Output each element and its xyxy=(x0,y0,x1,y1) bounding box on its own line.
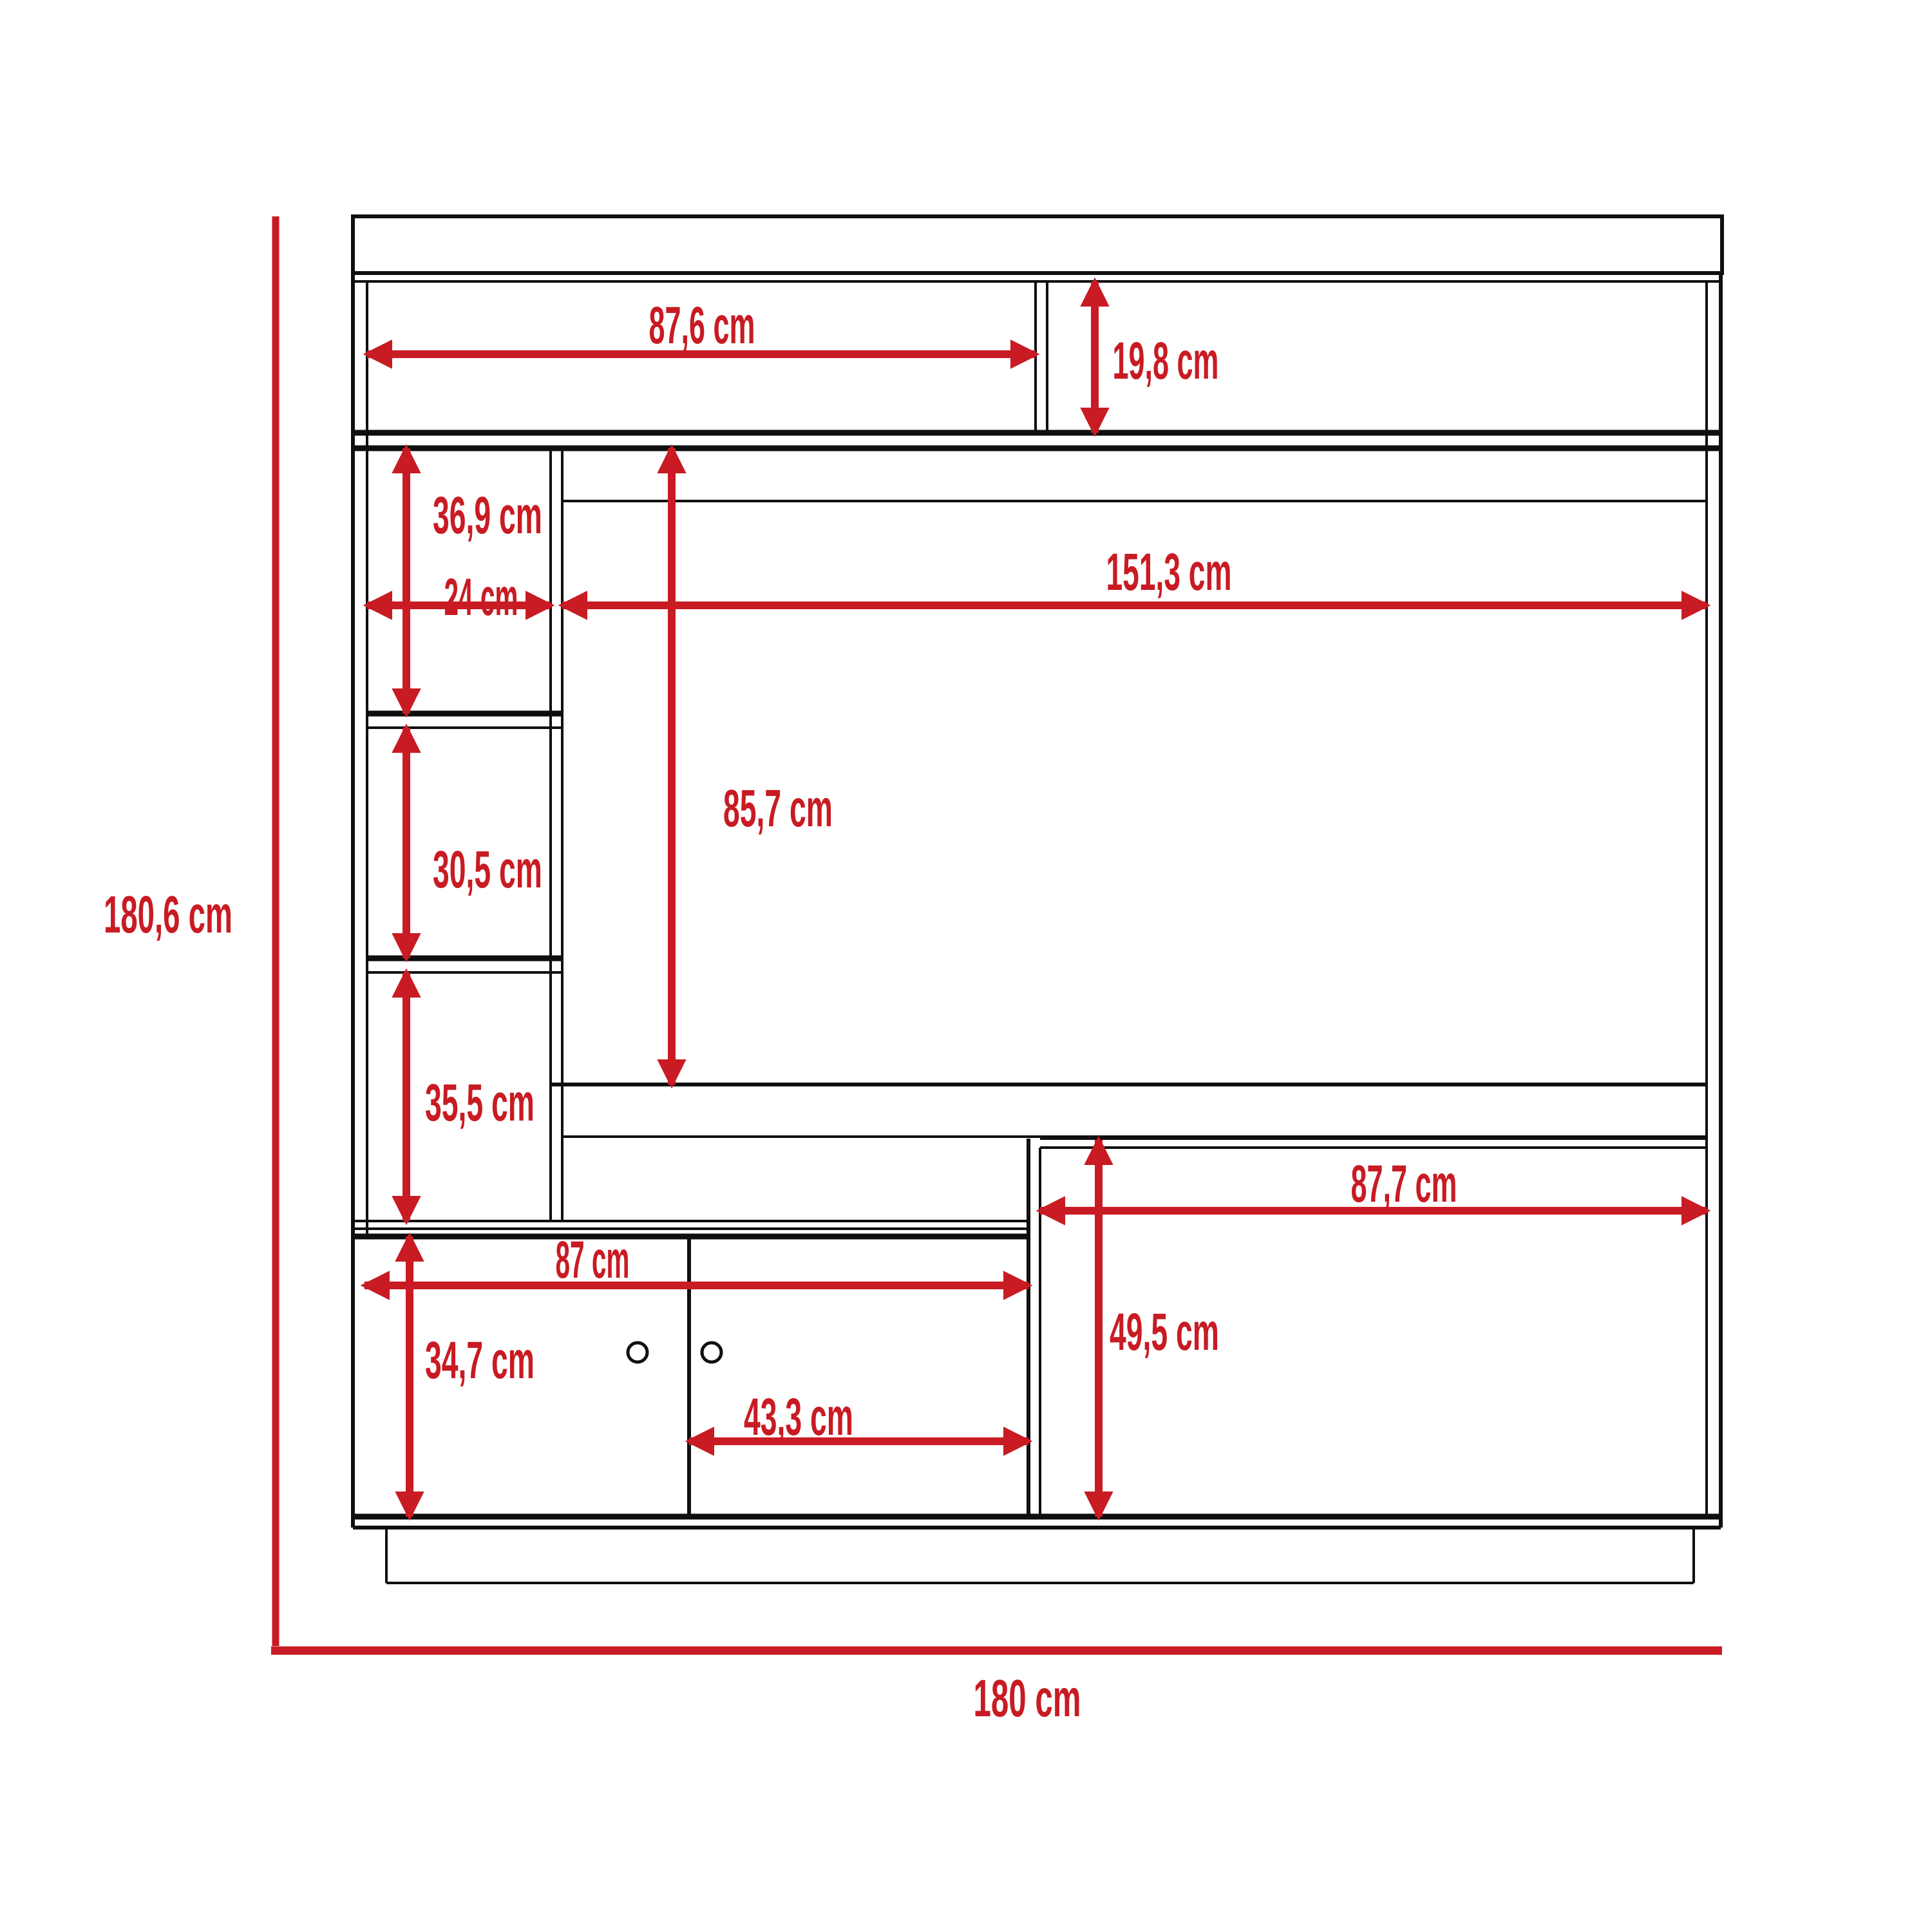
dim-right-cabinet-width: 87,7 cm xyxy=(1040,1155,1707,1213)
door-knob-right-icon xyxy=(702,1343,721,1362)
dim-top-shelf-width: 87,6 cm xyxy=(367,296,1036,355)
dim-label-right-cabinet-height: 49,5 cm xyxy=(1110,1303,1219,1361)
furniture-dimension-drawing: 180,6 cm 180 cm 87,6 cm 19,8 cm 36,9 cm … xyxy=(0,0,1932,1932)
dim-label-left-column-width: 24 cm xyxy=(444,568,518,627)
crown-top-panel xyxy=(353,216,1722,273)
dim-label-upper-left-cubby-height: 36,9 cm xyxy=(433,486,542,545)
dim-left-column-width: 24 cm xyxy=(367,568,551,627)
side-and-door-lines xyxy=(353,273,1721,1528)
dim-label-tv-opening-height: 85,7 cm xyxy=(723,779,833,838)
dim-door-section-width: 87 cm xyxy=(365,1231,1028,1289)
dim-tv-opening-height: 85,7 cm xyxy=(672,448,833,1084)
dimension-diagram-page: 180,6 cm 180 cm 87,6 cm 19,8 cm 36,9 cm … xyxy=(0,0,1932,1932)
dim-top-shelf-height: 19,8 cm xyxy=(1095,281,1219,433)
dim-label-middle-left-cubby-height: 30,5 cm xyxy=(433,840,542,899)
dim-label-right-cabinet-width: 87,7 cm xyxy=(1351,1155,1457,1213)
cabinet-outline xyxy=(353,216,1722,1583)
dim-tv-opening-width: 151,3 cm xyxy=(562,543,1707,605)
dim-lower-left-cubby-height: 35,5 cm xyxy=(406,972,535,1221)
door-knob-left-icon xyxy=(628,1343,647,1362)
dim-label-lower-left-cubby-height: 35,5 cm xyxy=(425,1074,535,1132)
dim-right-cabinet-height: 49,5 cm xyxy=(1099,1140,1219,1517)
shelf-boards xyxy=(353,433,1721,1517)
inner-frame-lines xyxy=(353,281,1722,1583)
dim-door-section-height: 34,7 cm xyxy=(410,1236,535,1517)
dim-middle-left-cubby-height: 30,5 cm xyxy=(406,728,542,958)
dim-label-door-section-height: 34,7 cm xyxy=(425,1331,535,1390)
dim-right-door-width: 43,3 cm xyxy=(689,1388,1028,1446)
dim-label-right-door-width: 43,3 cm xyxy=(744,1388,853,1446)
dim-label-top-shelf-width: 87,6 cm xyxy=(649,296,755,355)
dim-label-tv-opening-width: 151,3 cm xyxy=(1106,543,1232,601)
dim-label-door-section-width: 87 cm xyxy=(556,1231,630,1289)
overall-dimension-ruler: 180,6 cm 180 cm xyxy=(104,216,1722,1728)
dim-label-top-shelf-height: 19,8 cm xyxy=(1113,332,1219,390)
overall-height-label: 180,6 cm xyxy=(104,885,232,944)
overall-width-label: 180 cm xyxy=(974,1669,1081,1728)
